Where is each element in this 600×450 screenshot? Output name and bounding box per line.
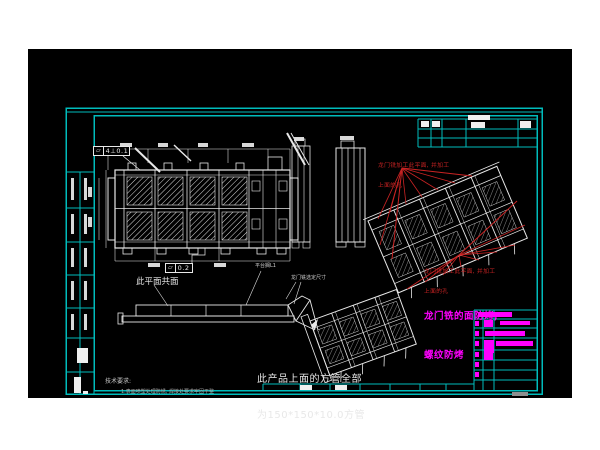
tech-req-item: 1.表面喷塑处理防锈, 焊接处要求牢固平整 (121, 390, 214, 396)
info-table-top-right (418, 115, 537, 147)
flatness-icon: ▱ (166, 264, 176, 272)
tolerance-value: 4⊥0.1 (104, 147, 131, 155)
page-number-mark (512, 392, 528, 396)
parts-list-strip (66, 172, 94, 394)
side-section-view-b (336, 141, 365, 247)
platform-label: 平台搁L1 (255, 264, 276, 270)
gantry-dim-label: 龙门铣选定尺寸 (291, 276, 326, 282)
red-machining-note-1: 龙门铣加工此平面, 并加工 上面的孔 (378, 150, 449, 203)
main-plan-view (99, 133, 309, 261)
cad-screenshot-page: ▱ 4⊥0.1 ▱ 0.2 龙门铣加工此平面, 并加工 上面的孔 龙门铣加工此平… (0, 0, 600, 450)
platform-elevation-view (118, 248, 318, 330)
tech-req-title: 技术要求: (105, 379, 131, 386)
tolerance-value: 0.2 (176, 264, 192, 272)
mount-feet (123, 248, 286, 254)
flatness-icon: ▱ (94, 147, 104, 155)
tolerance-frame-2: ▱ 0.2 (165, 263, 193, 273)
side-section-view-a (292, 139, 310, 248)
product-note: 此产品上面的方管全部 为150*150*10.0方管 (257, 350, 365, 446)
tolerance-frame-1: ▱ 4⊥0.1 (93, 146, 130, 156)
coplanar-label: 此平面共面 (136, 278, 179, 288)
cad-canvas: ▱ 4⊥0.1 ▱ 0.2 龙门铣加工此平面, 并加工 上面的孔 龙门铣加工此平… (28, 49, 572, 398)
magenta-antibake-note: 龙门铣的面防烤, 螺纹防烤 (424, 284, 498, 388)
